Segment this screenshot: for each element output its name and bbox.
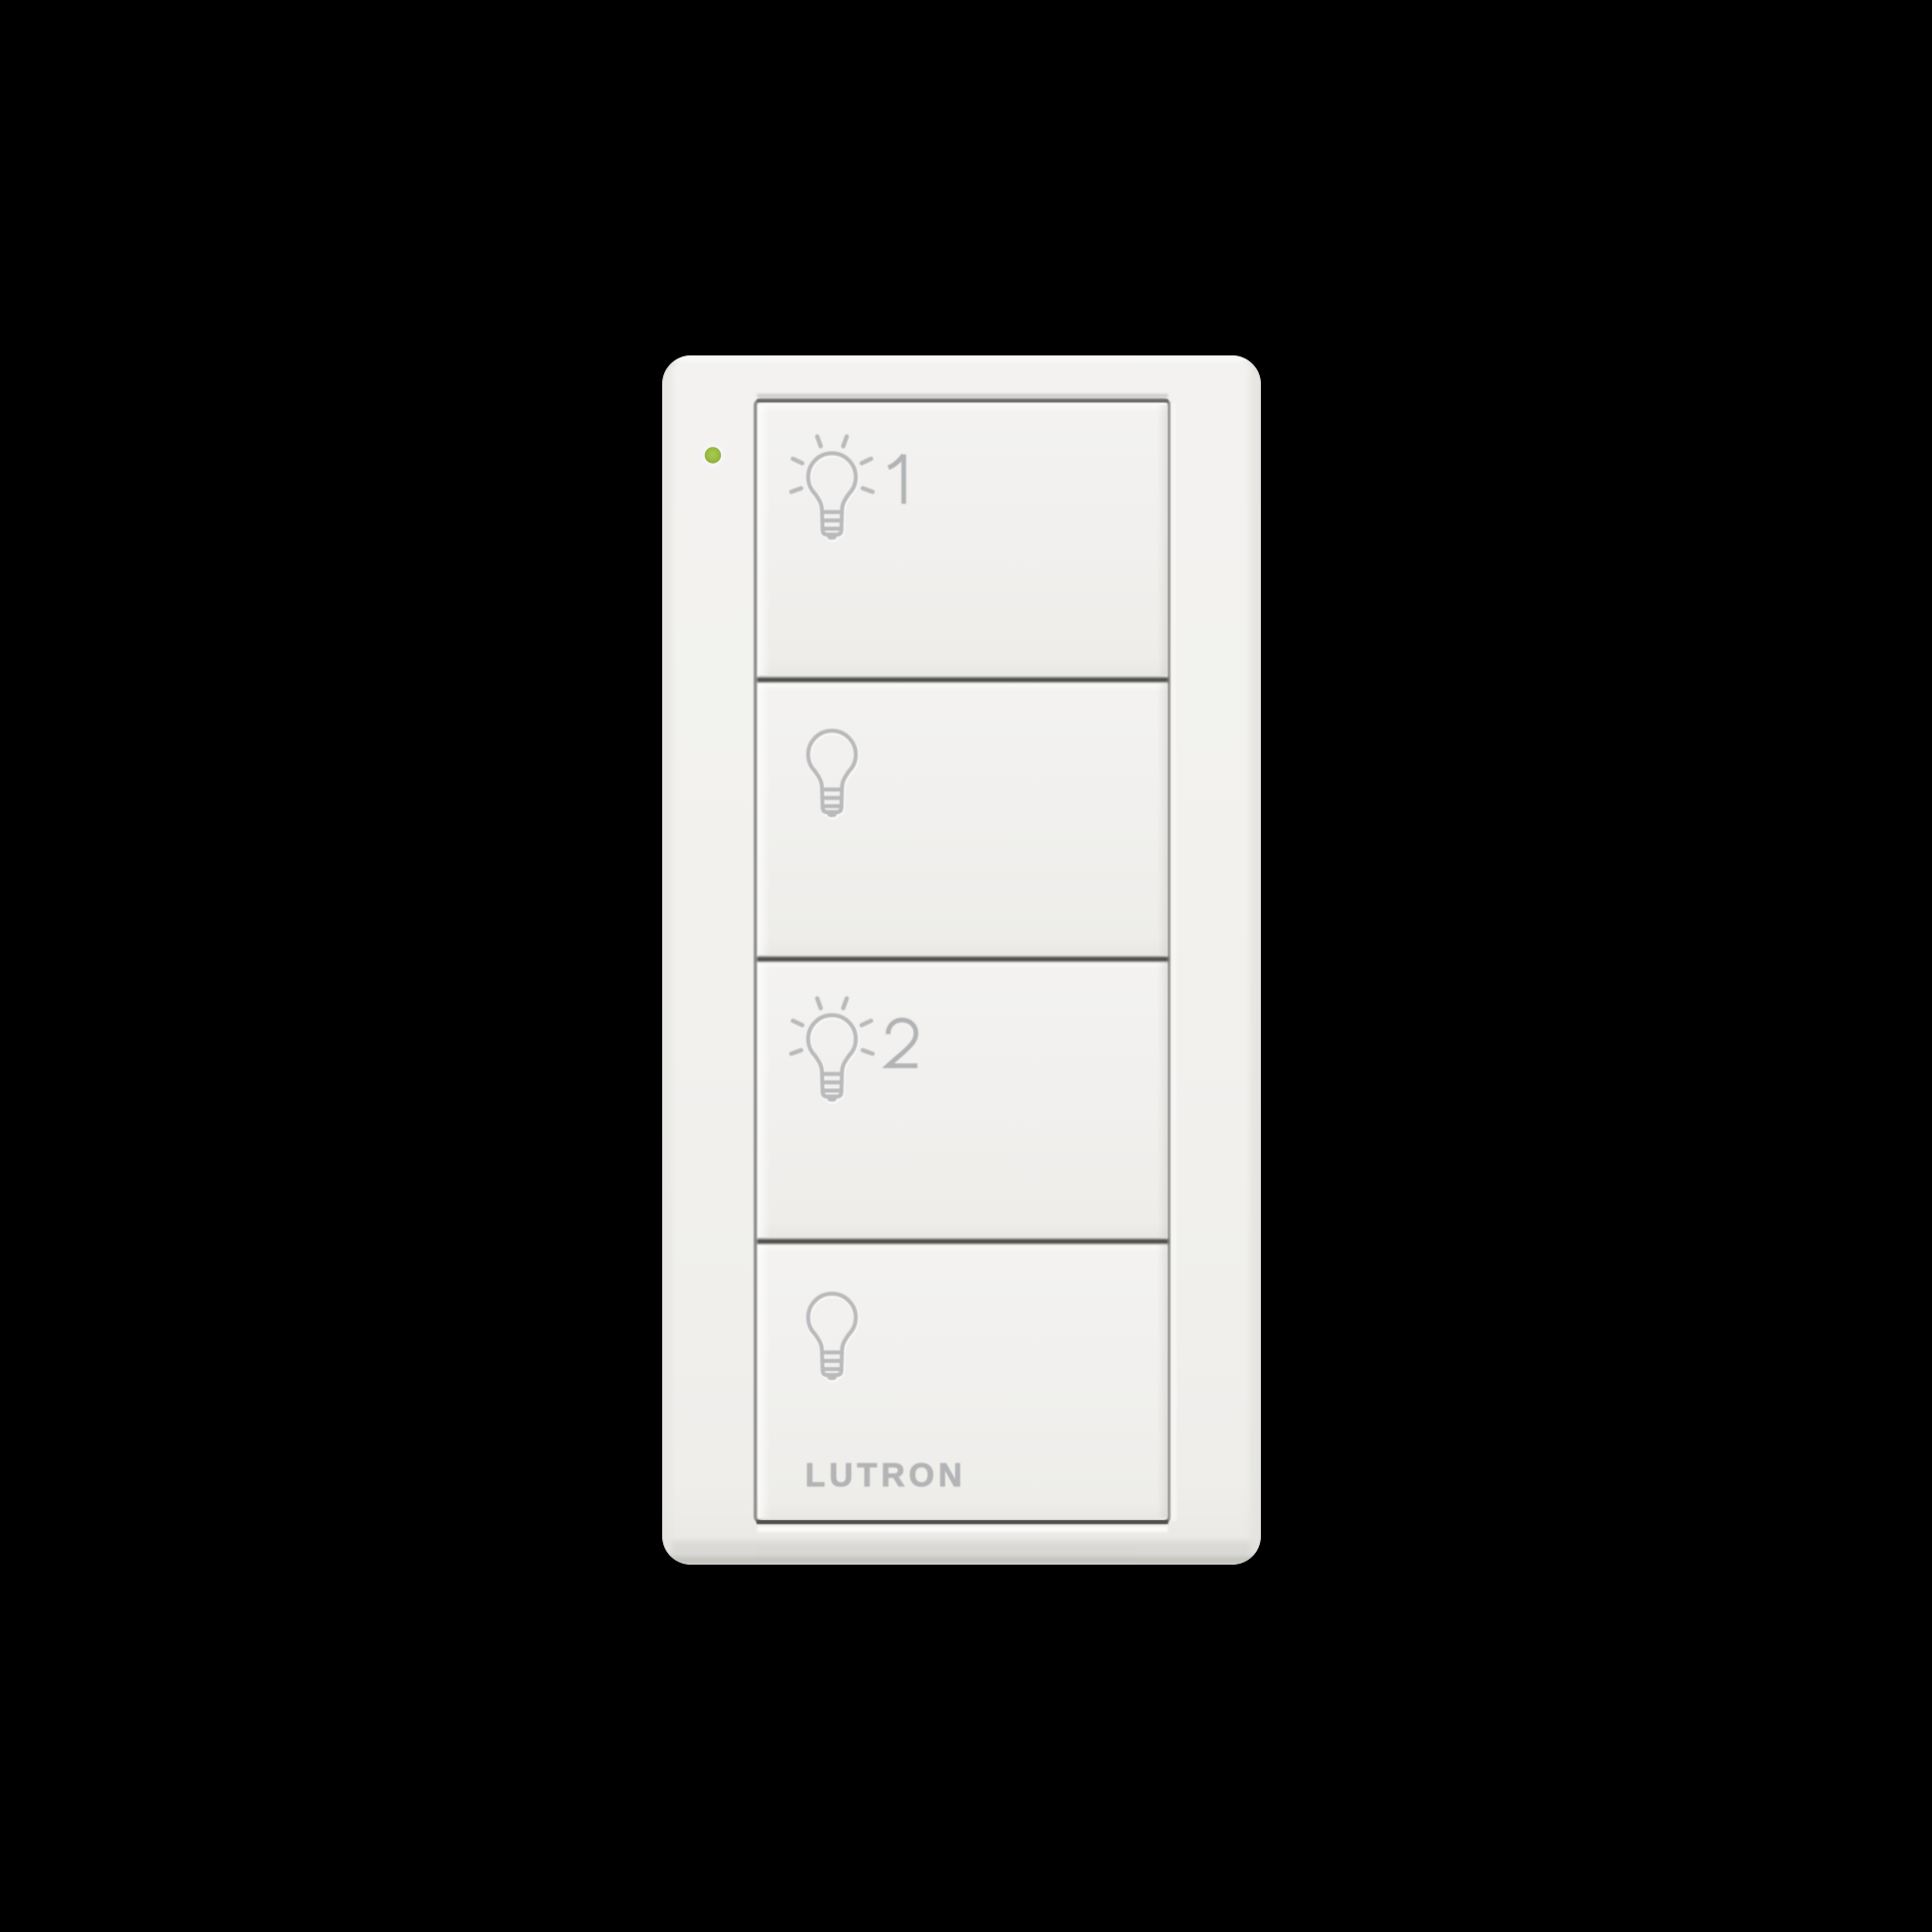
svg-text:LUTRON: LUTRON [805,1456,962,1493]
